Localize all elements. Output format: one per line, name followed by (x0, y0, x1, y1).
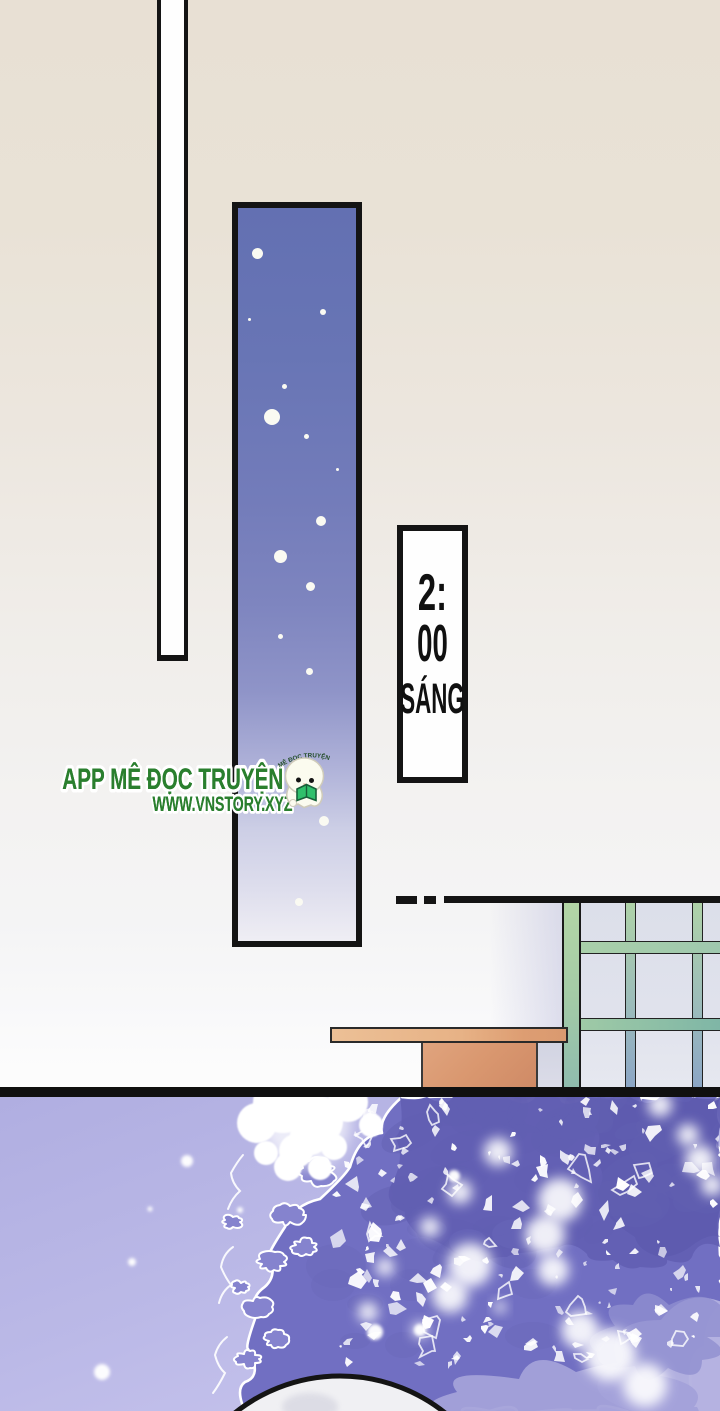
svg-text:APP MÊ ĐỌC TRUYỆN: APP MÊ ĐỌC TRUYỆN (62, 762, 283, 796)
svg-text:WWW.VNSTORY.XYZ: WWW.VNSTORY.XYZ (153, 793, 293, 816)
